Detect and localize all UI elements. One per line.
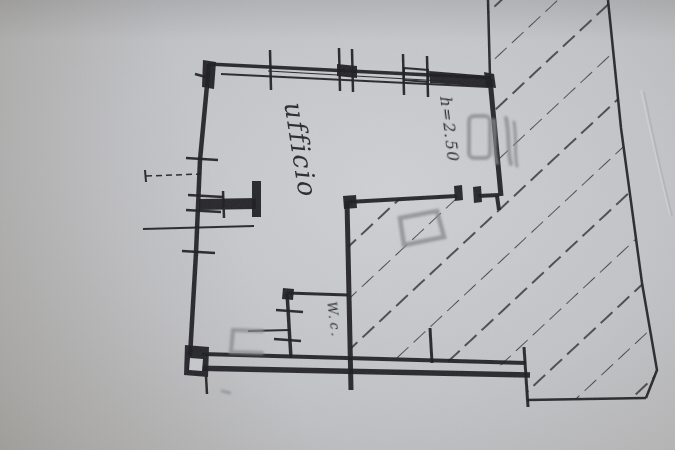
photo-grain-overlay bbox=[0, 0, 675, 450]
floor-plan-photo: ufficio h=2.50 W.c. bbox=[0, 0, 675, 450]
floor-plan-drawing: ufficio h=2.50 W.c. bbox=[0, 0, 675, 450]
